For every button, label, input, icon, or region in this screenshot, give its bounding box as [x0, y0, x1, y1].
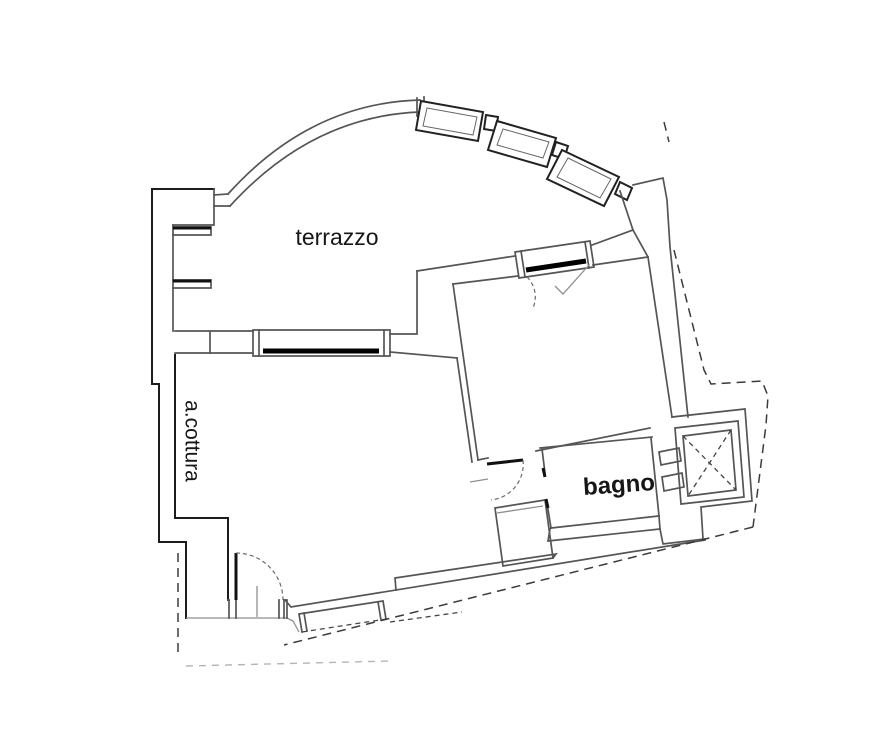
- door-swing-arc: [491, 460, 523, 500]
- door-leaf: [487, 460, 523, 464]
- terrace-parapet-arc: [214, 97, 424, 206]
- shaft-hatch: [662, 473, 684, 491]
- panel-connector-3: [615, 182, 632, 200]
- ledge: [395, 554, 556, 590]
- bottom-window: [299, 601, 386, 632]
- hallway-door: [470, 460, 523, 500]
- entry-door-area: [186, 553, 287, 618]
- terrace-label: terrazzo: [295, 224, 378, 250]
- door-leaf: [555, 265, 589, 294]
- door-swing-arc: [527, 277, 535, 308]
- awning-panel-2: [488, 121, 556, 167]
- floor-plan-drawing: terrazzo a.cottura bagno: [0, 0, 881, 754]
- room-labels: terrazzo a.cottura bagno: [181, 224, 656, 501]
- shaft: [659, 409, 752, 539]
- shaft-cross: [683, 430, 736, 496]
- bedroom-walls: [417, 230, 652, 462]
- door-swing-arc: [236, 553, 283, 600]
- terrace-window: [210, 330, 457, 358]
- bathroom-label: bagno: [582, 469, 656, 501]
- terrace-edge: [390, 271, 417, 334]
- bedroom-french-door: [515, 241, 594, 308]
- bottom-wall: [285, 540, 705, 632]
- kitchenette-label: a.cottura: [181, 400, 204, 482]
- dashed-boundary: [178, 122, 768, 666]
- floor-plan: terrazzo a.cottura bagno: [0, 0, 881, 754]
- arc-awning-panels: [416, 101, 632, 206]
- right-exterior-wall: [620, 178, 688, 417]
